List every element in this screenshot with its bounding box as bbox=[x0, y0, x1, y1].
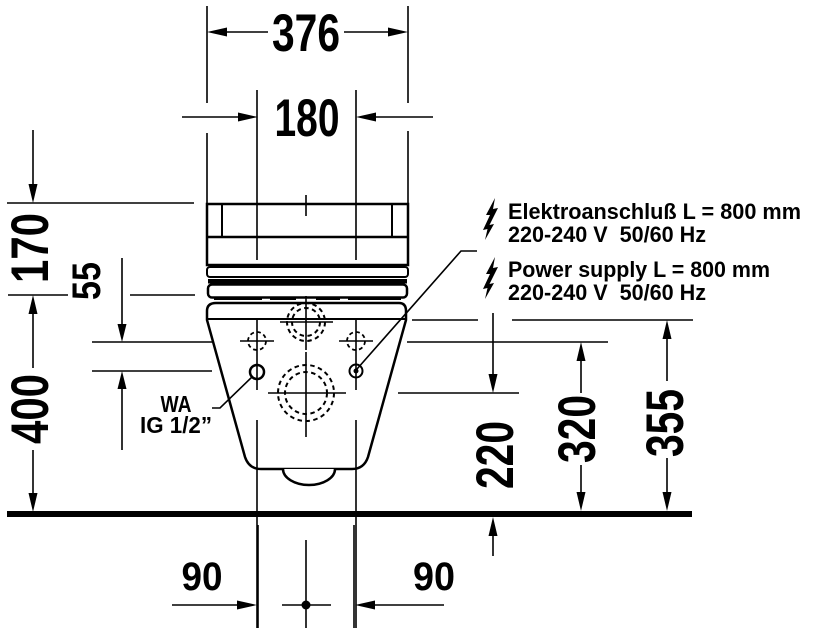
arrowhead-down bbox=[663, 492, 672, 511]
electrical-label-de-line1: Elektroanschluß L = 800 mm bbox=[508, 199, 801, 224]
dim-220: 220 bbox=[398, 313, 525, 556]
arrowhead-down bbox=[577, 492, 586, 511]
arrowhead-up bbox=[118, 371, 127, 389]
arrowhead-down bbox=[29, 184, 38, 203]
dim-55-label: 55 bbox=[65, 262, 109, 300]
arrowhead-up bbox=[29, 295, 38, 314]
arrowhead-right bbox=[388, 28, 408, 37]
dim-355-label: 355 bbox=[636, 389, 695, 457]
center-mark-dot bbox=[302, 601, 311, 610]
dim-400-label: 400 bbox=[1, 374, 60, 444]
arrowhead-down bbox=[118, 324, 127, 342]
annotation-electrical: Elektroanschluß L = 800 mm 220-240 V 50/… bbox=[483, 198, 801, 305]
arrowhead-right bbox=[237, 601, 257, 610]
arrowhead-left bbox=[207, 28, 227, 37]
electrical-label-en-line1: Power supply L = 800 mm bbox=[508, 257, 770, 282]
electrical-label-de-line2: 220-240 V 50/60 Hz bbox=[508, 222, 706, 247]
dim-376-label: 376 bbox=[272, 4, 340, 63]
arrowhead-left bbox=[356, 113, 376, 122]
seat-ring-band bbox=[208, 285, 407, 298]
lightning-bolt-icon bbox=[483, 198, 498, 240]
seat-lid-band bbox=[207, 267, 408, 277]
dim-90-right-label: 90 bbox=[413, 555, 455, 599]
arrowhead-down bbox=[489, 374, 498, 393]
technical-drawing-page: 376 180 170 400 55 2 bbox=[0, 0, 813, 630]
arrowhead-up bbox=[489, 517, 498, 536]
dim-170-label: 170 bbox=[1, 213, 60, 283]
dim-90-right: 90 bbox=[354, 525, 455, 628]
dim-90-left: 90 bbox=[172, 525, 258, 628]
dim-320-label: 320 bbox=[548, 395, 607, 463]
lightning-bolt-icon bbox=[483, 257, 498, 299]
dim-180-label: 180 bbox=[275, 89, 340, 148]
arrowhead-right bbox=[238, 113, 258, 122]
dimension-drawing: 376 180 170 400 55 2 bbox=[0, 0, 813, 630]
outlet-bump-arc bbox=[283, 469, 335, 485]
dim-180: 180 bbox=[182, 89, 433, 148]
arrowhead-up bbox=[663, 320, 672, 339]
arrowhead-down bbox=[29, 493, 38, 512]
cistern-outline bbox=[207, 204, 408, 265]
seat-gap-bar bbox=[208, 279, 407, 284]
ground-line bbox=[7, 511, 692, 517]
dim-170-400: 170 400 bbox=[1, 130, 195, 512]
water-label-line2: IG 1/2” bbox=[140, 412, 212, 438]
dim-220-label: 220 bbox=[466, 421, 525, 489]
arrowhead-left bbox=[355, 601, 375, 610]
electrical-label-en-line2: 220-240 V 50/60 Hz bbox=[508, 280, 706, 305]
dim-90-left-label: 90 bbox=[182, 555, 223, 599]
annotation-water: WA IG 1/2” bbox=[140, 391, 212, 438]
center-mark bbox=[282, 601, 331, 610]
arrowhead-up bbox=[577, 342, 586, 361]
